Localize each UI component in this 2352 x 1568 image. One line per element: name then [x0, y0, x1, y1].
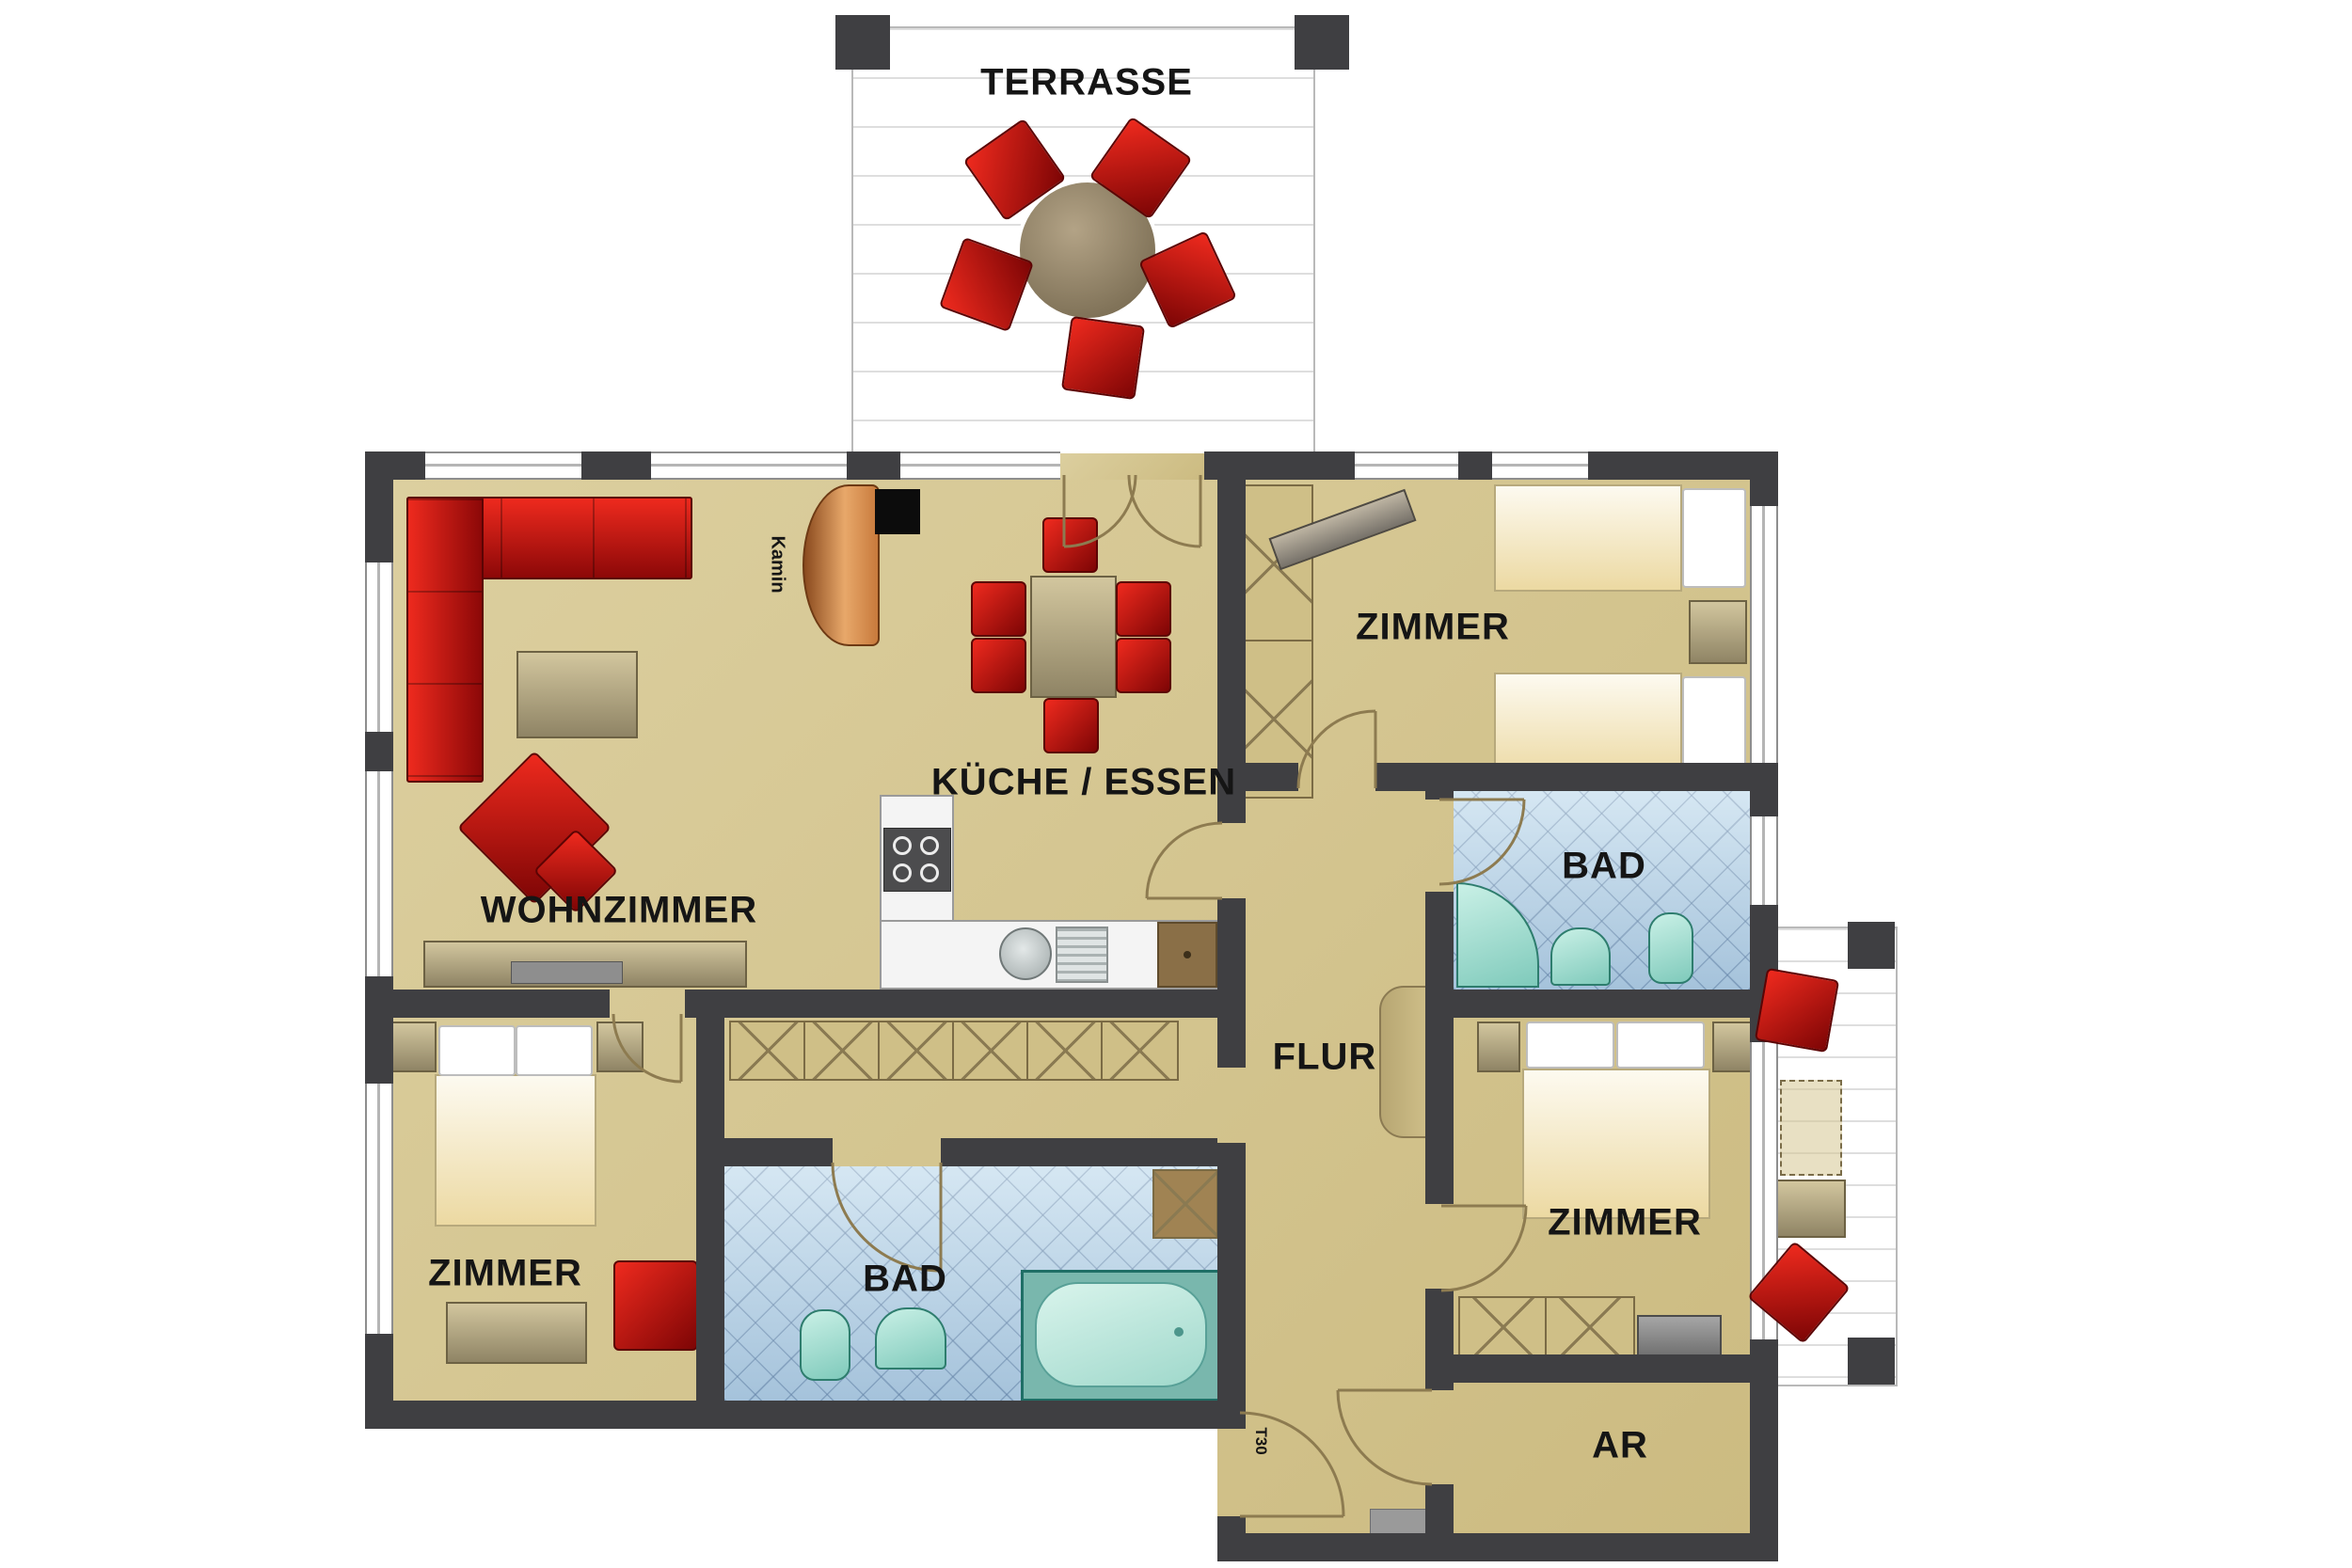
room-label-terrasse: TERRASSE — [980, 62, 1193, 104]
room-label-zimmer-top: ZIMMER — [1356, 607, 1510, 649]
room-label-wohnzimmer: WOHNZIMMER — [481, 890, 757, 932]
room-label-bad-bottom: BAD — [863, 1259, 947, 1301]
annotation-t30: T30 — [1251, 1427, 1270, 1454]
room-label-ar: AR — [1592, 1425, 1648, 1467]
room-label-bad-top: BAD — [1562, 846, 1646, 888]
balcony-chair — [1755, 968, 1839, 1053]
floor-plan: TERRASSE ZIMMER KÜCHE / ESSEN WOHNZIMMER… — [0, 0, 2352, 1568]
room-label-kueche: KÜCHE / ESSEN — [931, 762, 1236, 804]
room-label-zimmer-right: ZIMMER — [1548, 1202, 1702, 1244]
room-label-flur: FLUR — [1273, 1037, 1377, 1079]
room-label-zimmer-left: ZIMMER — [428, 1253, 582, 1295]
annotation-kamin: Kamin — [767, 535, 788, 593]
